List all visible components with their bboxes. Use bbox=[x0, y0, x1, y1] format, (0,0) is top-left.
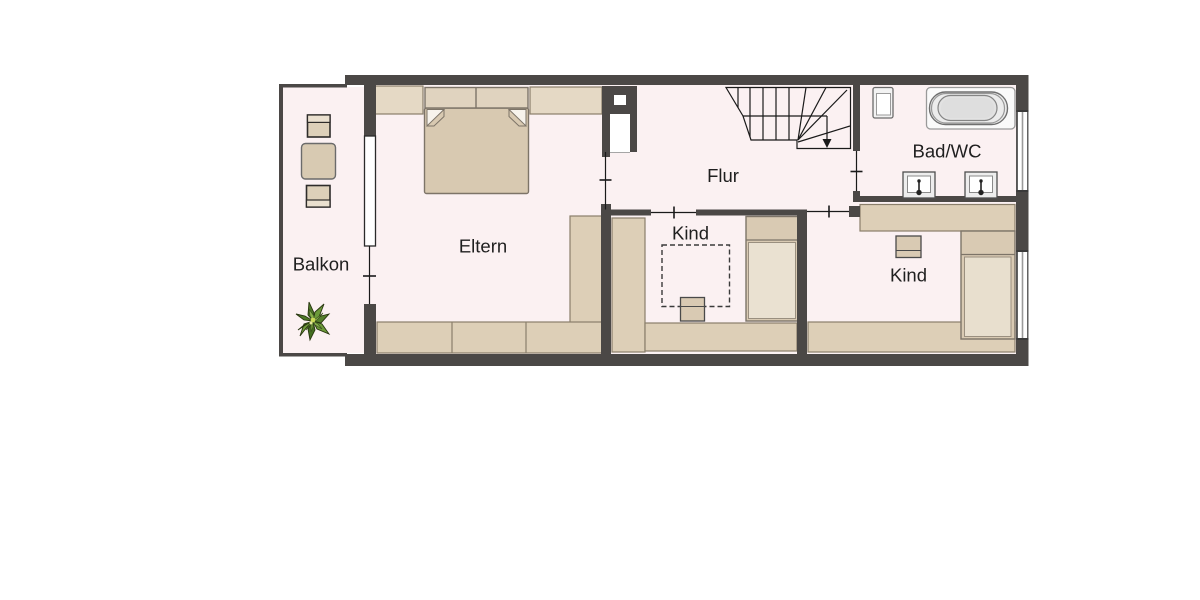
svg-text:Eltern: Eltern bbox=[459, 236, 507, 257]
svg-text:Kind: Kind bbox=[890, 265, 927, 286]
svg-text:Kind: Kind bbox=[672, 223, 709, 244]
svg-text:Bad/WC: Bad/WC bbox=[913, 141, 982, 162]
svg-text:Balkon: Balkon bbox=[293, 254, 350, 275]
svg-text:Flur: Flur bbox=[707, 165, 739, 186]
